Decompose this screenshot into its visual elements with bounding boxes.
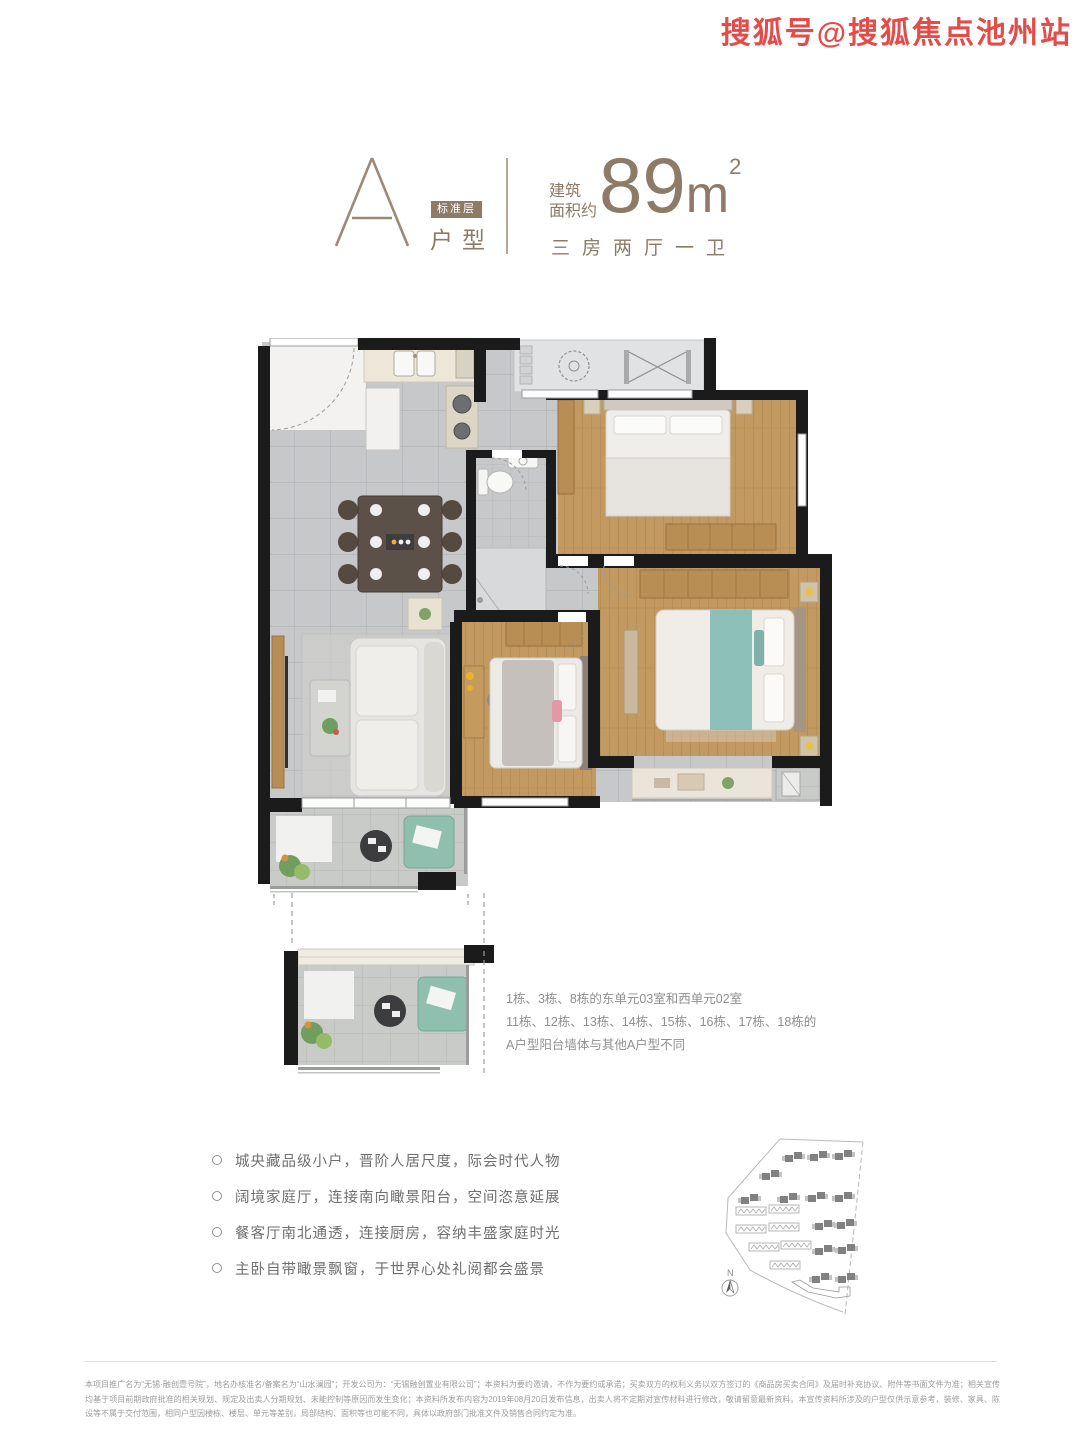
area-label-line2: 面积约 [549,202,597,222]
laundry-balcony [514,340,704,392]
wardrobe [640,570,788,598]
area-unit: m [686,166,729,224]
bed [656,608,806,732]
selling-point: 餐客厅南北通透，连接厨房，容纳丰盛家庭时光 [212,1222,561,1242]
floor-plan-rendering [258,338,836,908]
bullet-circle-icon [212,1227,222,1237]
bullet-circle-icon [212,1191,222,1201]
area-label: 建筑 面积约 [549,182,597,222]
coffee-table [310,680,350,756]
round-table [374,995,406,1027]
selling-point: 城央藏品级小户，晋阶人居尺度，际会时代人物 [212,1150,561,1170]
flyer-page: 搜狐号@搜狐焦点池州站 A 标准层 户型 建筑 面积约 89m2 三房两厅一卫 [0,0,1080,1456]
shower [470,548,546,614]
note-line-2: 11栋、12栋、13栋、14栋、15栋、16栋、17栋、18栋的 [506,1011,936,1034]
area-value: 89 [599,141,686,229]
disclaimer-text: 本项目推广名为“无锡·融创壹号院”，地名办核准名/备案名为“山水澜园”；开发公司… [85,1378,1000,1422]
selling-point: 阔境家庭厅，连接南向瞰景阳台，空间恣意延展 [212,1186,561,1206]
selling-points: 城央藏品级小户，晋阶人居尺度，际会时代人物 阔境家庭厅，连接南向瞰景阳台，空间恣… [212,1150,561,1294]
bed [490,656,592,770]
area-exponent: 2 [729,154,741,179]
sofa [350,638,446,796]
selling-point: 主卧自带瞰景飘窗，于世界心处礼阅都会盛景 [212,1258,561,1278]
north-label: N [727,1268,734,1278]
area-label-line1: 建筑 [549,182,597,202]
note-line-3: A户型阳台墙体与其他A户型不同 [506,1034,936,1057]
bathroom [470,450,546,618]
layout-summary: 三房两厅一卫 [551,233,737,260]
bullet-circle-icon [212,1263,222,1273]
projection-dashed-lines [292,893,484,947]
header-divider [506,158,508,254]
unit-type-label: 户型 [430,221,494,255]
floor-badge: 标准层 [431,201,482,218]
footer-divider [85,1361,997,1362]
bedroom-middle [460,615,596,801]
dining-area [338,496,462,592]
north-arrow: N [722,1268,738,1296]
kitchen-sink [394,351,414,376]
dresser [666,524,776,550]
site-buildings [736,1150,858,1298]
round-table [360,830,392,862]
bedroom-north [558,398,796,556]
floor-plan-notes: 1栋、3栋、8栋的东单元03室和西单元02室 11栋、12栋、13栋、14栋、1… [506,988,936,1057]
bullet-circle-icon [212,1155,222,1165]
master-bedroom [598,566,820,756]
watermark-text: 搜狐号@搜狐焦点池州站 [721,8,1072,52]
fridge [366,388,400,450]
plan-letter-a [330,156,414,248]
toilet [478,469,513,495]
tv-console [272,636,284,788]
alternate-balcony-rendering [278,893,494,1093]
area-number: 89m2 [599,146,741,224]
plan-letter-value: A [0,0,1,1]
mini-balcony [776,768,820,800]
site-plan: N [700,1130,870,1320]
bay-window [632,768,772,800]
entry [262,338,366,430]
note-line-1: 1栋、3栋、8栋的东单元03室和西单元02室 [506,988,936,1011]
tv [285,656,288,768]
